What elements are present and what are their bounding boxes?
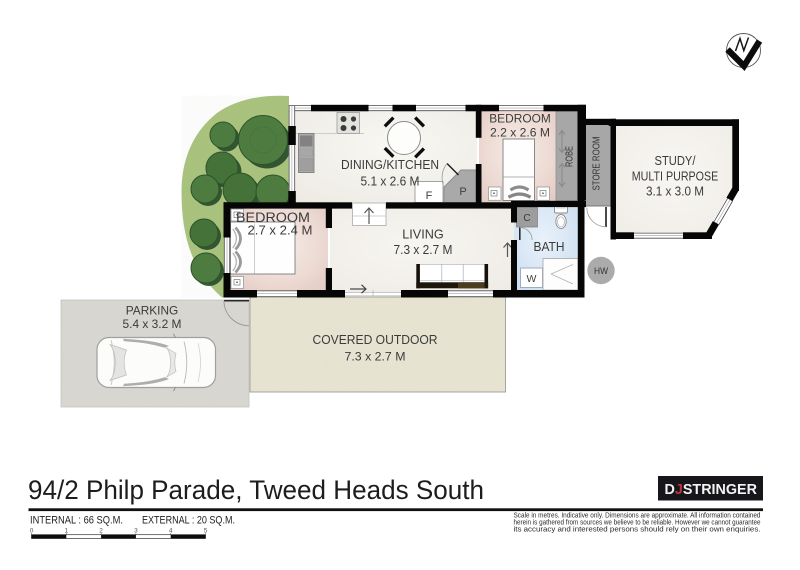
svg-text:7.3 x 2.7 M: 7.3 x 2.7 M xyxy=(394,243,453,257)
svg-text:3.1 x 3.0 M: 3.1 x 3.0 M xyxy=(646,185,704,199)
svg-text:2.7 x 2.4 M: 2.7 x 2.4 M xyxy=(248,223,313,238)
svg-text:94/2 Philp Parade, Tweed Heads: 94/2 Philp Parade, Tweed Heads South xyxy=(28,475,484,505)
svg-text:2.2 x 2.6 M: 2.2 x 2.6 M xyxy=(490,126,550,140)
svg-text:5.4 x 3.2 M: 5.4 x 3.2 M xyxy=(123,317,182,331)
svg-text:ROBE: ROBE xyxy=(565,146,576,167)
svg-text:DINING/KITCHEN: DINING/KITCHEN xyxy=(341,157,439,172)
svg-text:P: P xyxy=(459,186,466,198)
svg-text:COVERED OUTDOOR: COVERED OUTDOOR xyxy=(313,333,438,347)
svg-text:MULTI PURPOSE: MULTI PURPOSE xyxy=(632,169,719,183)
svg-text:BATH: BATH xyxy=(534,240,565,254)
svg-text:EXTERNAL : 20 SQ.M.: EXTERNAL : 20 SQ.M. xyxy=(142,515,235,527)
svg-text:HW: HW xyxy=(594,266,608,276)
svg-text:F: F xyxy=(426,190,433,202)
svg-text:5.1 x 2.6 M: 5.1 x 2.6 M xyxy=(361,175,420,189)
svg-text:DJSTRINGER: DJSTRINGER xyxy=(665,482,758,498)
svg-text:its accuracy and interested pe: its accuracy and interested persons shou… xyxy=(514,527,761,534)
svg-text:INTERNAL : 66 SQ.M.: INTERNAL : 66 SQ.M. xyxy=(30,515,123,527)
svg-text:PARKING: PARKING xyxy=(126,304,179,318)
svg-text:LIVING: LIVING xyxy=(402,227,444,242)
svg-text:herein is gathered from source: herein is gathered from sources we belie… xyxy=(514,520,761,527)
svg-text:STORE ROOM: STORE ROOM xyxy=(591,137,603,191)
svg-text:C: C xyxy=(523,213,530,224)
svg-text:7.3 x 2.7 M: 7.3 x 2.7 M xyxy=(345,350,406,364)
svg-text:BEDROOM: BEDROOM xyxy=(489,111,551,125)
svg-text:W: W xyxy=(527,273,537,285)
svg-text:STUDY/: STUDY/ xyxy=(655,154,696,168)
svg-text:Scale in metres. Indicative o: Scale in metres. Indicative only. Dimens… xyxy=(514,513,761,520)
